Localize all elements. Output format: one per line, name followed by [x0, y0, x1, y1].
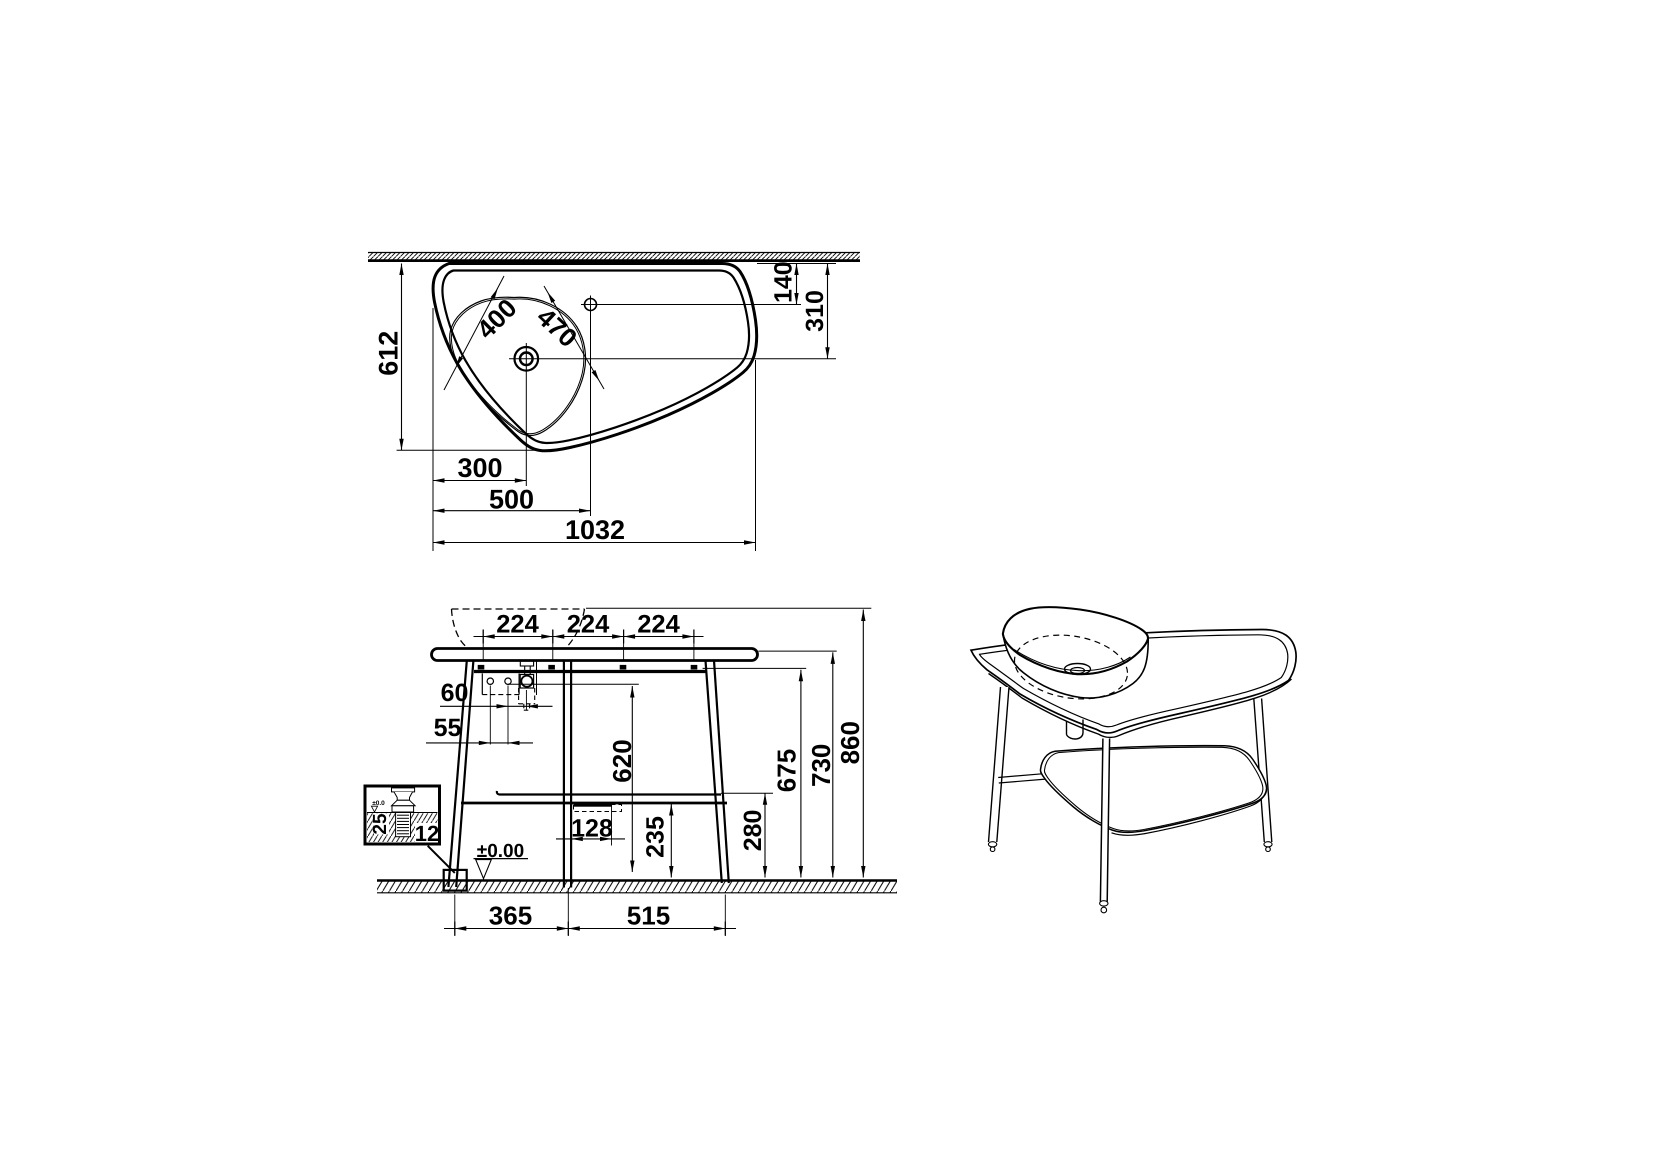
svg-text:612: 612	[374, 331, 404, 376]
svg-text:1032: 1032	[565, 515, 625, 545]
svg-text:860: 860	[835, 721, 865, 764]
svg-text:500: 500	[489, 485, 534, 515]
svg-text:140: 140	[770, 261, 798, 303]
svg-text:224: 224	[637, 611, 680, 639]
svg-text:235: 235	[642, 816, 670, 858]
svg-text:55: 55	[434, 714, 462, 742]
svg-text:224: 224	[496, 611, 539, 639]
svg-text:25: 25	[370, 813, 391, 835]
svg-text:675: 675	[772, 749, 802, 792]
svg-text:730: 730	[806, 744, 836, 787]
svg-text:620: 620	[607, 739, 637, 782]
svg-text:224: 224	[567, 611, 610, 639]
svg-text:128: 128	[571, 815, 613, 843]
svg-text:310: 310	[801, 290, 829, 332]
svg-text:60: 60	[441, 679, 469, 707]
svg-text:365: 365	[489, 901, 532, 931]
svg-text:300: 300	[457, 453, 502, 483]
svg-text:515: 515	[627, 901, 670, 931]
svg-text:12: 12	[415, 821, 439, 846]
svg-text:280: 280	[739, 810, 767, 852]
